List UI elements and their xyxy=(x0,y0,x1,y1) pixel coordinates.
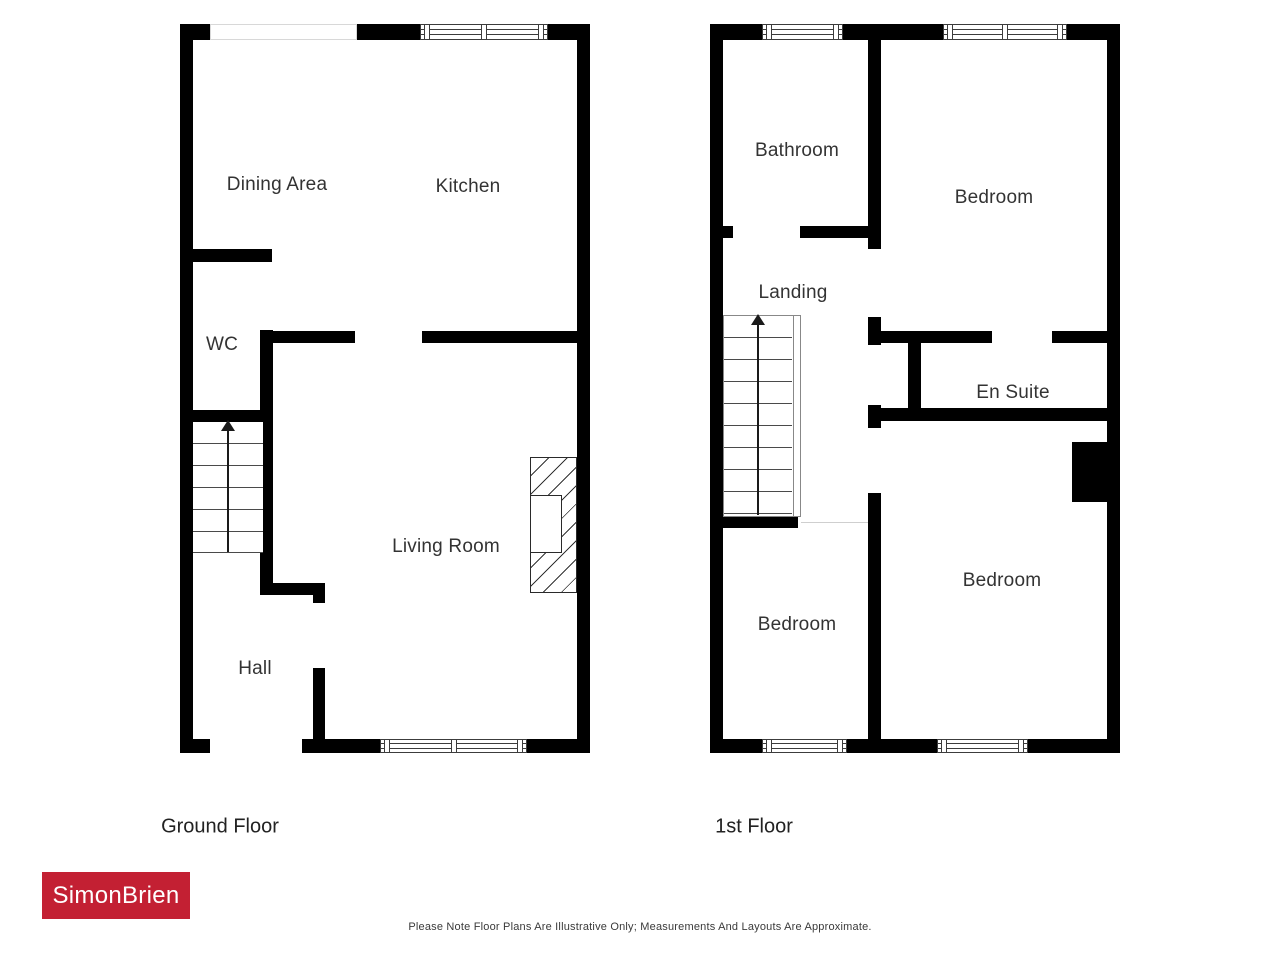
disclaimer-text: Please Note Floor Plans Are Illustrative… xyxy=(0,921,1280,933)
bathroom-bottom-wall xyxy=(723,226,733,238)
bathroom-window xyxy=(762,24,843,40)
window-divider xyxy=(766,740,772,752)
room-label-landing: Landing xyxy=(758,282,827,304)
window-pane-line xyxy=(763,34,842,35)
wall-segment xyxy=(843,24,943,40)
window-divider xyxy=(947,25,953,39)
window-pane-line xyxy=(763,743,846,744)
ensuite-top-wall xyxy=(881,331,992,343)
window-pane-line xyxy=(938,748,1027,749)
room-label-ensuite: En Suite xyxy=(976,382,1049,404)
window-divider xyxy=(1018,740,1024,752)
landing-boundary-line xyxy=(801,522,868,523)
room-label-bedroom-top: Bedroom xyxy=(955,187,1034,209)
agent-logo-text: SimonBrien xyxy=(52,882,179,910)
wall-segment-left xyxy=(710,24,723,753)
wall-segment xyxy=(710,739,762,753)
bedroom-divider-wall xyxy=(868,493,881,739)
wall-segment xyxy=(847,739,937,753)
room-label-bathroom: Bathroom xyxy=(755,140,839,162)
window-divider xyxy=(766,25,772,39)
bathroom-bedroom-wall xyxy=(868,40,881,249)
first-floor-plan: Bathroom Bedroom Landing En Suite Bedroo… xyxy=(0,0,640,960)
stairs-up-arrow-shaft xyxy=(757,324,759,515)
landing-wall-segment xyxy=(868,317,881,345)
stair-edge-line xyxy=(793,316,794,516)
staircase-first xyxy=(723,315,801,517)
window-pane-line xyxy=(938,743,1027,744)
chimney-breast xyxy=(1072,442,1107,502)
bedroom-window-left xyxy=(762,739,847,753)
wall-segment-right xyxy=(1107,24,1120,753)
ensuite-left-wall xyxy=(908,343,921,408)
window-divider xyxy=(833,25,839,39)
bedroom-window-top xyxy=(943,24,1067,40)
window-pane-line xyxy=(763,748,846,749)
wall-segment xyxy=(1028,739,1120,753)
bedroom-window-right xyxy=(937,739,1028,753)
window-pane-line xyxy=(763,29,842,30)
window-divider xyxy=(1002,25,1008,39)
window-divider xyxy=(1057,25,1063,39)
window-divider xyxy=(837,740,843,752)
window-divider xyxy=(941,740,947,752)
floorplan-page: { "plan": { "floors": [ { "title": "Grou… xyxy=(0,0,1280,960)
room-label-bedroom-right: Bedroom xyxy=(963,570,1042,592)
room-label-bedroom-left: Bedroom xyxy=(758,614,837,636)
bathroom-bottom-wall xyxy=(800,226,881,238)
first-floor-title: 1st Floor xyxy=(715,816,793,839)
ensuite-bottom-wall xyxy=(868,408,1107,421)
ensuite-top-wall xyxy=(1052,331,1107,343)
agent-logo: SimonBrien xyxy=(42,872,190,919)
